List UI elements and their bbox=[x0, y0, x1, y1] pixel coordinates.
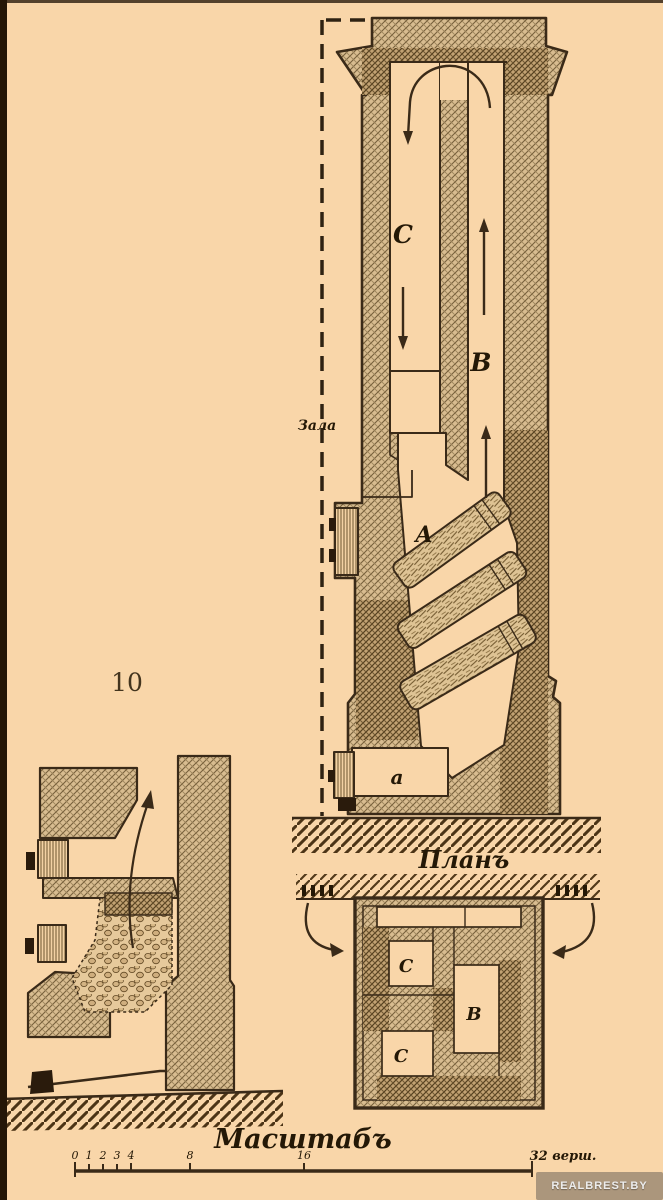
lower-door-knob bbox=[25, 938, 34, 954]
scale-tick-label: 4 bbox=[127, 1149, 135, 1162]
ash-door-knob bbox=[328, 770, 335, 782]
upper-left-block bbox=[40, 768, 137, 838]
scale-tick-label: 3 bbox=[114, 1149, 121, 1162]
ash-door-foot bbox=[338, 798, 356, 811]
plan-masonry-right bbox=[499, 960, 521, 1062]
scale-end-label: 32 верш. bbox=[530, 1149, 597, 1164]
page-left-border bbox=[0, 0, 7, 1200]
arrowhead-up-icon bbox=[141, 790, 154, 809]
plan-channel-c-bottom-label: C bbox=[394, 1046, 409, 1067]
scale-tick-label: 2 bbox=[99, 1149, 107, 1162]
arrowhead-icon bbox=[330, 943, 344, 957]
plan-title: Планъ bbox=[418, 845, 510, 874]
scale-tick-label: 8 bbox=[187, 1149, 194, 1162]
arrowhead-icon bbox=[552, 945, 566, 959]
stove-drawing: C B A a Зала Планъ bbox=[0, 0, 663, 1200]
plan-flue-b-label: B bbox=[465, 1004, 481, 1025]
scale-tick-label: 1 bbox=[86, 1149, 93, 1162]
grate-lintel bbox=[105, 893, 172, 915]
firebox-label: A bbox=[413, 522, 432, 548]
foundation-foot bbox=[30, 1070, 54, 1094]
small-stove-section: 10 bbox=[2, 668, 283, 1131]
plan-view: Планъ bbox=[296, 845, 600, 1108]
plan-top-channel bbox=[377, 907, 521, 927]
figure-number: 10 bbox=[111, 668, 143, 697]
channel-c-label: C bbox=[393, 220, 413, 249]
scale-ticks bbox=[75, 1161, 532, 1177]
channel-b-label: B bbox=[469, 348, 491, 377]
elevation-section: C B A a Зала bbox=[292, 18, 601, 853]
stove-diagram-page: C B A a Зала Планъ bbox=[0, 0, 663, 1200]
plan-channel-c-top-label: C bbox=[399, 956, 414, 977]
firebox-door-hinge-bottom bbox=[329, 549, 336, 562]
plan-masonry-bottom bbox=[377, 1076, 521, 1100]
plan-masonry-left bbox=[363, 927, 389, 1031]
room-label: Зала bbox=[298, 418, 337, 434]
room-wall-band bbox=[296, 874, 600, 899]
scale-tick-label: 16 bbox=[297, 1149, 311, 1162]
firebox-door bbox=[329, 508, 358, 575]
ash-pit-label: a bbox=[391, 765, 404, 789]
scale-bar: Масштабъ 0 1 2 3 4 8 16 32 верш. bbox=[72, 1124, 597, 1177]
chimney-column bbox=[166, 756, 234, 1090]
ash-door bbox=[334, 752, 354, 798]
firebox-door-hinge-top bbox=[329, 518, 336, 531]
scale-tick-label: 0 bbox=[72, 1149, 79, 1162]
lower-door bbox=[25, 925, 66, 962]
upper-door bbox=[26, 840, 68, 878]
upper-door-knob bbox=[26, 852, 35, 870]
watermark: REALBREST.BY bbox=[536, 1172, 663, 1200]
